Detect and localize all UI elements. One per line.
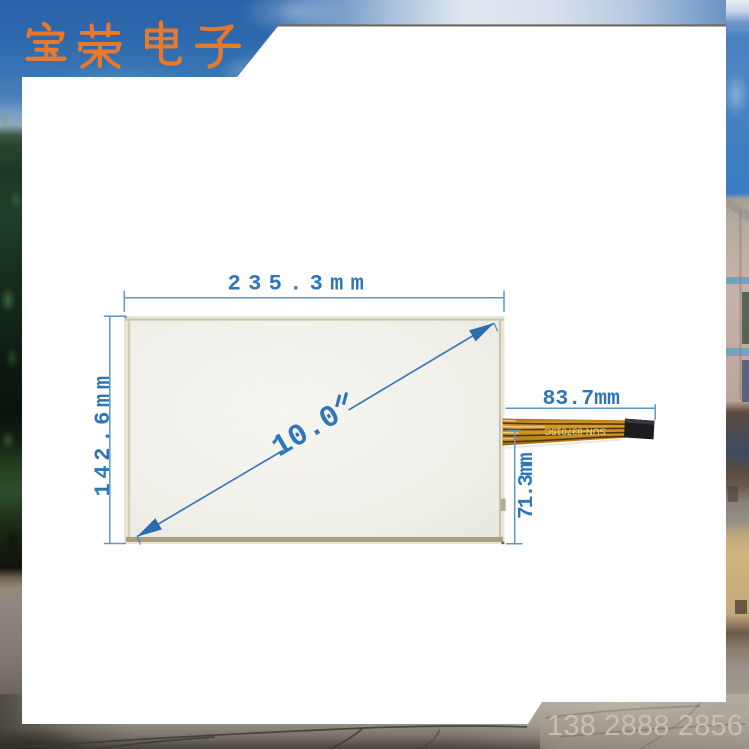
svg-text:138 2888 2856: 138 2888 2856: [547, 710, 743, 742]
svg-text:142.6mm: 142.6mm: [91, 371, 116, 496]
svg-text:71.3mm: 71.3mm: [516, 453, 539, 519]
svg-text:83.7mm: 83.7mm: [543, 387, 621, 411]
svg-text:SUN-837015C: SUN-837015C: [544, 426, 606, 437]
svg-text:235.3mm: 235.3mm: [228, 272, 372, 297]
